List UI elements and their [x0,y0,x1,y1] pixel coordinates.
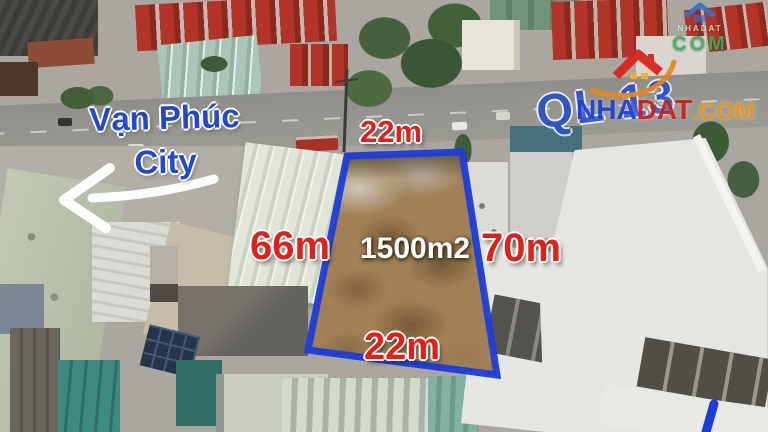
watermark-brand-text: NHADAT.COM [576,94,755,126]
area-label: 1500m2 [360,232,470,266]
utility-pole [344,70,347,152]
aerial-photo-scene: 22m 66m 1500m2 70m 22m Vạn Phúc City QL … [0,0,768,432]
left-depth-label: 66m [250,224,330,269]
bottom-width-label: 22m [364,326,440,369]
landmark-label: Vạn Phúc City [75,94,255,186]
badge-small-text: NHADAT [652,24,748,33]
corner-badge: NHADAT COM [652,2,748,56]
top-width-label: 22m [360,114,422,150]
brand-part-tld: .COM [692,98,755,125]
badge-house-icon [683,2,717,24]
adjacent-plot-outline-mark [706,404,714,432]
right-depth-label: 70m [481,226,561,271]
watermark-logo: NHADAT.COM [560,46,768,130]
landmark-line1: Vạn Phúc [75,94,254,142]
landmark-line2: City [76,137,255,185]
brand-part-dat: DAT [637,94,692,125]
brand-part-nha: NHA [576,94,637,125]
badge-main-text: COM [652,33,748,56]
